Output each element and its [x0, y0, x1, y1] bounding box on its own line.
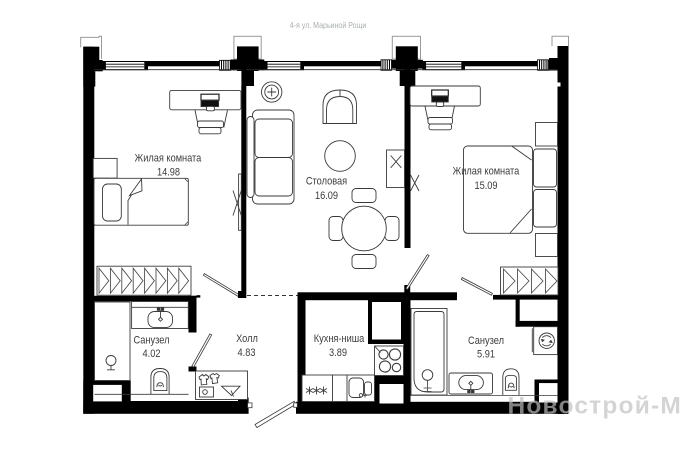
svg-text:Санузел: Санузел	[468, 335, 504, 347]
svg-text:3.89: 3.89	[329, 347, 347, 359]
svg-text:14.98: 14.98	[157, 167, 180, 179]
svg-text:5.91: 5.91	[477, 349, 495, 361]
svg-text:Новострой-М: Новострой-М	[508, 393, 682, 420]
svg-text:4.83: 4.83	[238, 347, 256, 359]
svg-text:Жилая комната: Жилая комната	[135, 153, 202, 165]
svg-text:16.09: 16.09	[315, 190, 338, 202]
svg-text:Кухня-ниша: Кухня-ниша	[314, 333, 365, 345]
svg-text:4.02: 4.02	[143, 348, 161, 360]
svg-text:Жилая комната: Жилая комната	[453, 166, 520, 178]
svg-text:Столовая: Столовая	[306, 176, 347, 188]
svg-text:4-я ул. Марьиной Рощи: 4-я ул. Марьиной Рощи	[290, 20, 367, 30]
svg-text:Санузел: Санузел	[134, 335, 170, 347]
svg-text:Холл: Холл	[236, 333, 258, 345]
svg-text:15.09: 15.09	[474, 180, 497, 192]
